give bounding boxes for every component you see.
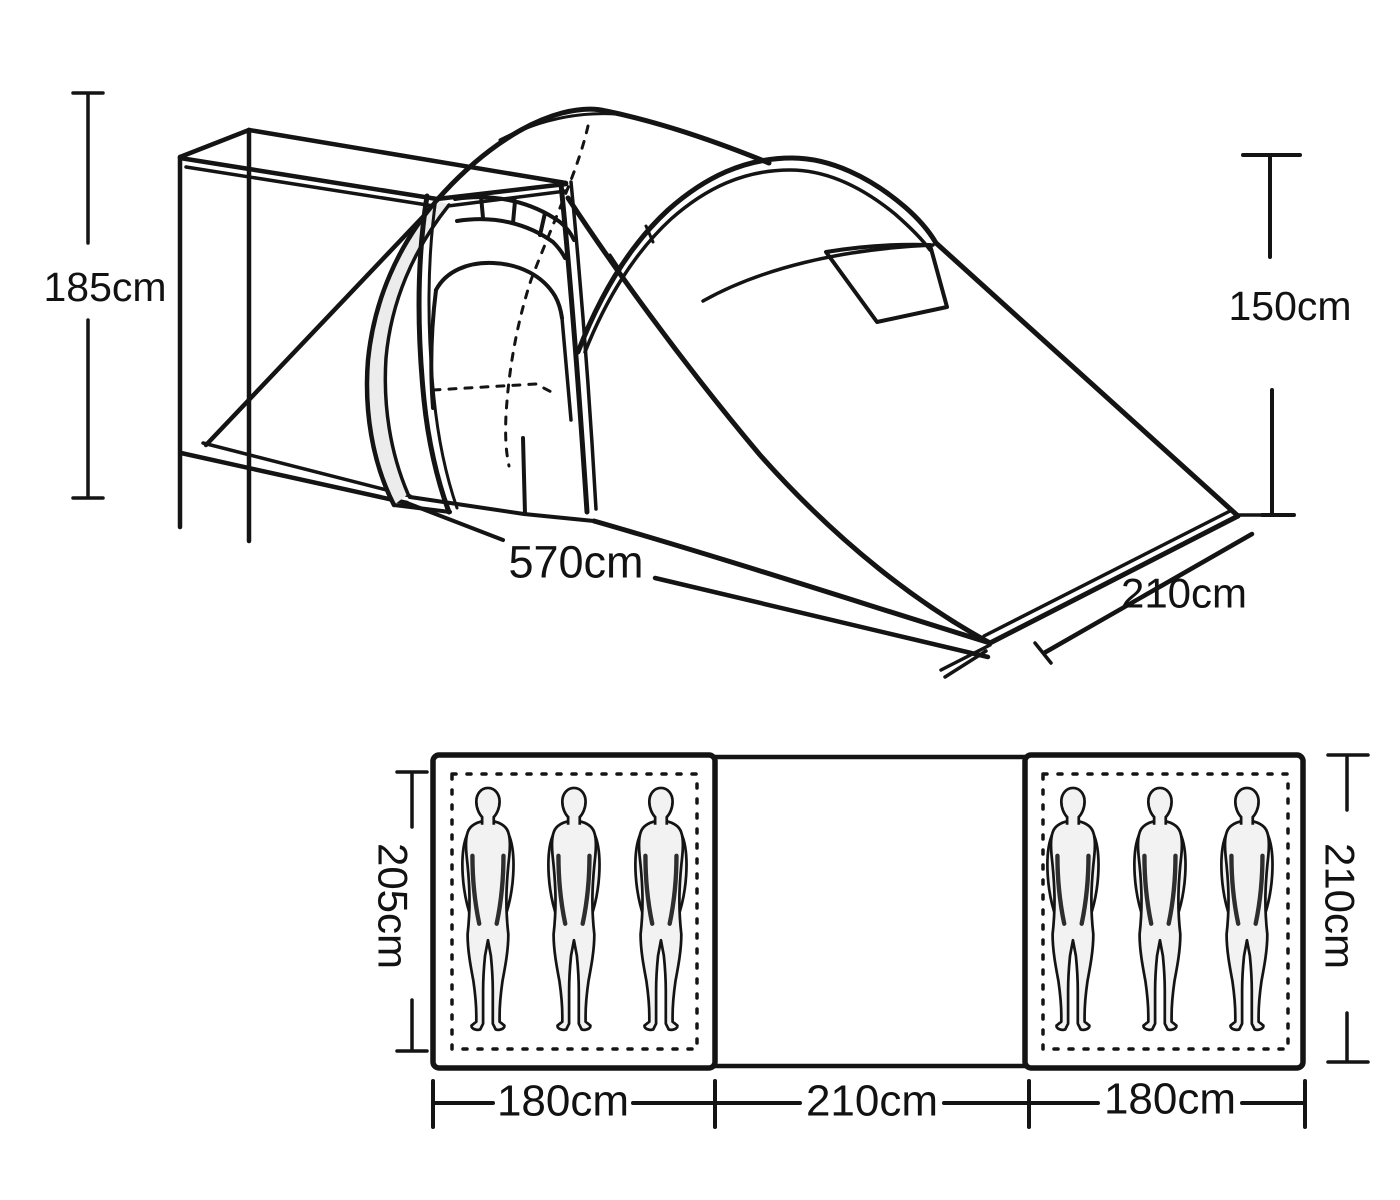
porch-bottom-beam — [181, 453, 407, 503]
floor-front-edge — [594, 521, 990, 643]
diagram-canvas: 185cm 150cm 570cm 210cm — [0, 0, 1400, 1200]
depth-label: 210cm — [1121, 570, 1247, 617]
inner-door-right-side — [562, 318, 571, 420]
living-width-label: 210cm — [806, 1077, 938, 1126]
inner-door-arch-top — [436, 263, 562, 318]
right-depth-label: 210cm — [1317, 843, 1364, 969]
person-silhouette — [635, 788, 686, 1030]
dimension-line-150 — [1243, 155, 1300, 515]
porch-height-label: 185cm — [43, 264, 166, 310]
right-width-label: 180cm — [1104, 1075, 1236, 1124]
porch-diagonal-brace — [206, 202, 437, 445]
left-bedroom — [433, 755, 715, 1068]
rear-dome-pole-sleeve-line — [500, 114, 616, 140]
living-area-walls — [715, 757, 1025, 1066]
dimension-bottom-widths: 180cm 210cm 180cm — [433, 1075, 1305, 1128]
porch-top-left-edge — [180, 130, 249, 157]
person-silhouette — [1134, 788, 1185, 1030]
door-sill-left — [394, 505, 450, 512]
dimension-210-tick — [1035, 643, 1051, 663]
dimension-left-depth: 205cm — [370, 772, 428, 1051]
length-label: 570cm — [508, 537, 643, 588]
door-flap-shading — [367, 200, 449, 505]
dimension-right-depth: 210cm — [1317, 755, 1369, 1062]
porch-top-front-edge — [180, 158, 566, 199]
floorplan: 205cm 210cm 180cm 210cm 180cm — [370, 755, 1369, 1127]
person-silhouette — [1047, 788, 1098, 1030]
person-silhouette — [548, 788, 599, 1030]
dimension-inner-height: 150cm — [1228, 155, 1351, 515]
perspective-view: 185cm 150cm 570cm 210cm — [43, 93, 1351, 677]
right-bedroom — [1025, 755, 1303, 1068]
living-area — [715, 757, 1025, 1066]
left-depth-label: 205cm — [370, 843, 417, 969]
tent-window — [826, 245, 947, 322]
tent-dimension-diagram: 185cm 150cm 570cm 210cm — [0, 0, 1400, 1200]
vestibule-seam-arc — [703, 245, 933, 301]
inner-height-label: 150cm — [1228, 283, 1351, 329]
vestibule-arch-inner — [585, 170, 930, 352]
inner-tub-edge — [523, 438, 525, 514]
left-width-label: 180cm — [497, 1077, 629, 1126]
dimension-porch-height: 185cm — [43, 93, 166, 498]
person-silhouette — [462, 788, 513, 1030]
person-silhouette — [1221, 788, 1272, 1030]
hidden-floor-dashed — [433, 384, 557, 395]
